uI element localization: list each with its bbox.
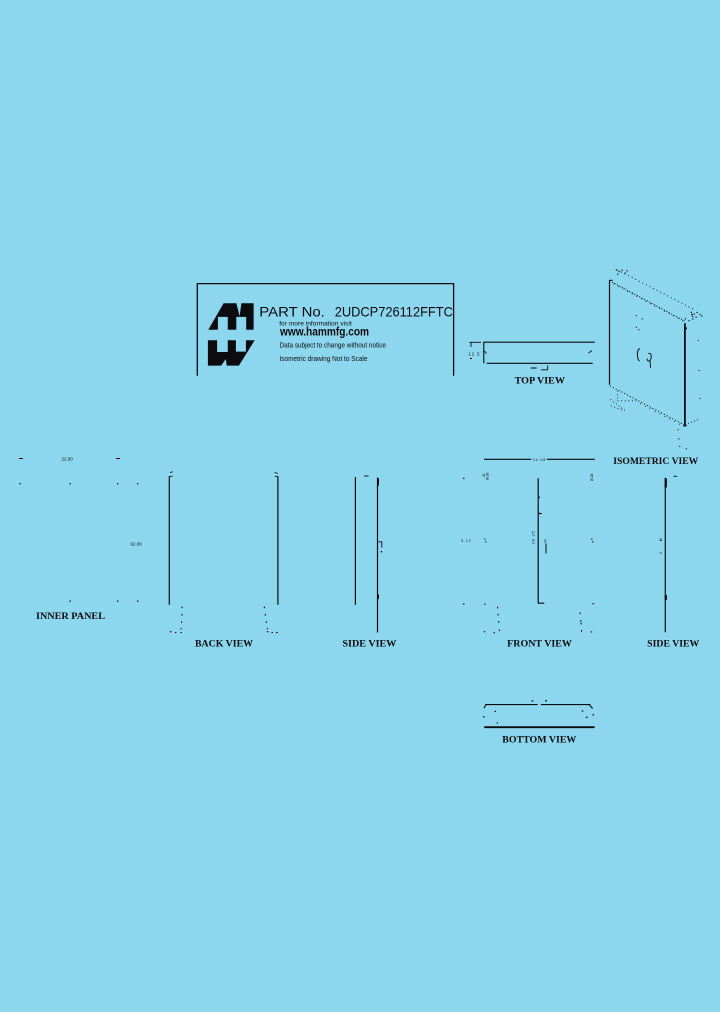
svg-text:2UDCP726112FFTC: 2UDCP726112FFTC <box>335 304 453 320</box>
svg-text:Ø.28: Ø.28 <box>590 474 594 481</box>
svg-text:SIDE VIEW: SIDE VIEW <box>647 640 700 650</box>
svg-text:BOTTOM VIEW: BOTTOM VIEW <box>502 736 577 746</box>
svg-text:ISOMETRIC VIEW: ISOMETRIC VIEW <box>613 457 698 467</box>
svg-text:22.00: 22.00 <box>62 457 74 462</box>
svg-text:62.00: 62.00 <box>131 542 143 547</box>
svg-text:TOP VIEW: TOP VIEW <box>515 377 566 387</box>
svg-text:FRONT VIEW: FRONT VIEW <box>507 640 572 650</box>
svg-text:www.hammfg.com: www.hammfg.com <box>279 327 369 339</box>
svg-text:INNER PANEL: INNER PANEL <box>36 612 105 622</box>
svg-text:Data subject to change without: Data subject to change without notice <box>280 341 387 350</box>
svg-text:12.5: 12.5 <box>469 352 481 357</box>
svg-text:Isometric drawing Not to Scale: Isometric drawing Not to Scale <box>280 354 368 363</box>
svg-text:SIDE VIEW: SIDE VIEW <box>342 640 397 650</box>
svg-text:28.35: 28.35 <box>531 531 535 544</box>
svg-text:.41: .41 <box>482 473 486 478</box>
svg-text:BACK VIEW: BACK VIEW <box>195 640 254 650</box>
svg-text:5.12: 5.12 <box>461 539 470 543</box>
svg-text:0: 0 <box>544 538 547 543</box>
svg-text:24.08: 24.08 <box>533 458 546 462</box>
svg-text:Ø.28: Ø.28 <box>486 473 490 480</box>
svg-text:PART No.: PART No. <box>259 304 325 320</box>
